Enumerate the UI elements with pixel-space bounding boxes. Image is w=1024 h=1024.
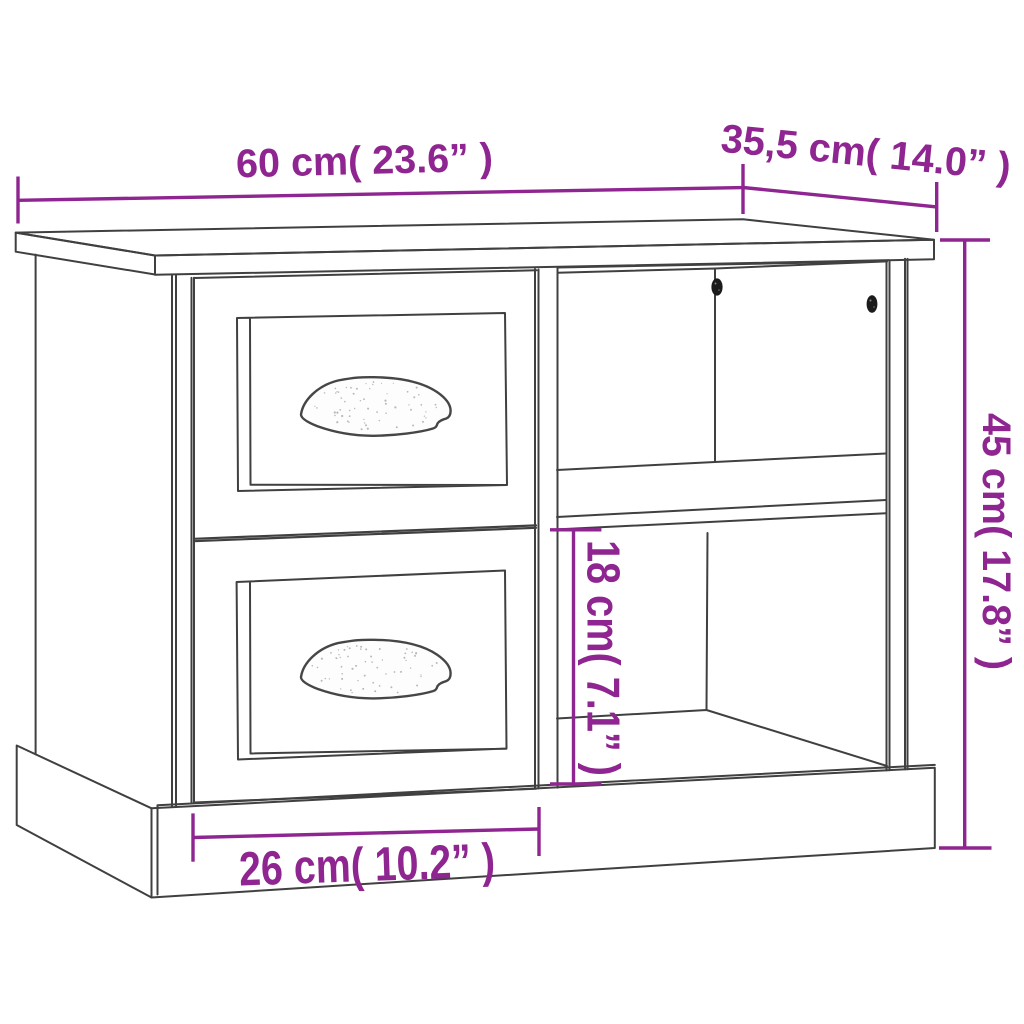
svg-text:45 cm( 17.8” ): 45 cm( 17.8” ) (974, 413, 1018, 670)
svg-text:26 cm( 10.2” ): 26 cm( 10.2” ) (238, 835, 496, 897)
svg-text:60 cm( 23.6” ): 60 cm( 23.6” ) (235, 136, 493, 187)
svg-text:18 cm( 7.1” ): 18 cm( 7.1” ) (577, 540, 629, 776)
